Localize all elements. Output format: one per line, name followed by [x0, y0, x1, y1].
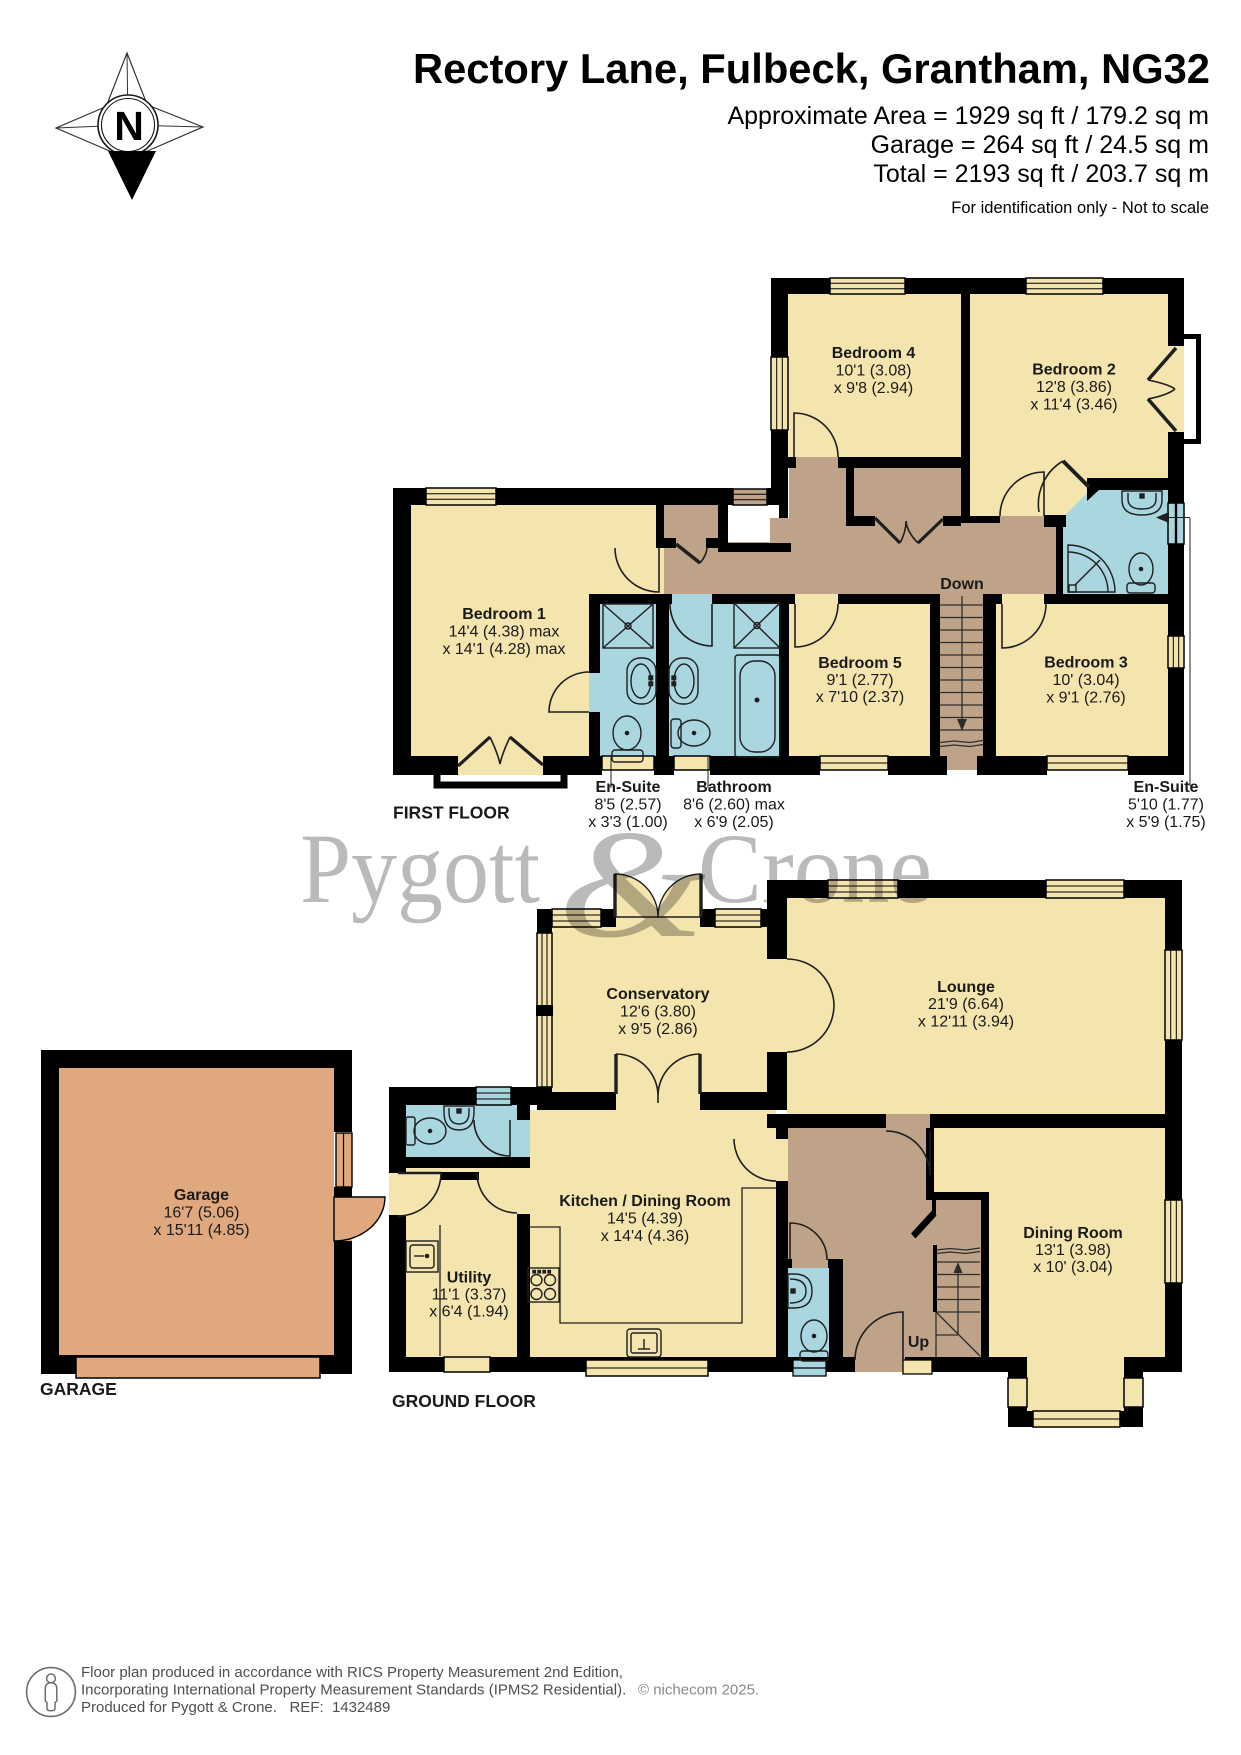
- svg-text:&: &: [558, 798, 706, 970]
- svg-text:10' (3.04): 10' (3.04): [1052, 672, 1119, 689]
- svg-text:x 14'1 (4.28) max: x 14'1 (4.28) max: [442, 641, 565, 658]
- svg-text:11'1 (3.37): 11'1 (3.37): [432, 1287, 507, 1304]
- svg-text:© nichecom 2025.: © nichecom 2025.: [638, 1682, 759, 1699]
- svg-text:9'1 (2.77): 9'1 (2.77): [826, 672, 893, 689]
- svg-text:Pygott: Pygott: [300, 813, 540, 924]
- svg-text:Bedroom 1: Bedroom 1: [462, 606, 546, 623]
- svg-text:x 10' (3.04): x 10' (3.04): [1033, 1259, 1113, 1276]
- svg-text:x 6'4 (1.94): x 6'4 (1.94): [429, 1304, 509, 1321]
- svg-text:Crone: Crone: [698, 813, 932, 924]
- svg-text:Up: Up: [908, 1334, 930, 1351]
- svg-text:x 12'11 (3.94): x 12'11 (3.94): [918, 1014, 1014, 1031]
- svg-text:12'6 (3.80): 12'6 (3.80): [620, 1004, 696, 1021]
- svg-text:Dining Room: Dining Room: [1023, 1225, 1123, 1242]
- svg-text:Garage = 264 sq ft / 24.5 sq m: Garage = 264 sq ft / 24.5 sq m: [871, 131, 1209, 159]
- svg-text:Incorporating International Pr: Incorporating International Property Mea…: [81, 1682, 626, 1699]
- svg-text:21'9 (6.64): 21'9 (6.64): [928, 996, 1004, 1013]
- svg-text:Produced for Pygott & Crone.: Produced for Pygott & Crone. REF: 143248…: [81, 1699, 390, 1716]
- svg-text:GROUND FLOOR: GROUND FLOOR: [392, 1391, 536, 1411]
- svg-text:14'4 (4.38) max: 14'4 (4.38) max: [449, 624, 560, 641]
- svg-text:Kitchen / Dining Room: Kitchen / Dining Room: [559, 1193, 731, 1210]
- svg-text:5'10 (1.77): 5'10 (1.77): [1128, 797, 1204, 814]
- svg-text:Approximate Area = 1929 sq ft: Approximate Area = 1929 sq ft / 179.2 sq…: [727, 102, 1209, 130]
- svg-text:x 11'4 (3.46): x 11'4 (3.46): [1030, 397, 1117, 414]
- svg-text:Bedroom 4: Bedroom 4: [832, 345, 916, 362]
- svg-text:Total = 2193 sq ft / 203.7 sq: Total = 2193 sq ft / 203.7 sq m: [873, 160, 1209, 188]
- svg-text:En-Suite: En-Suite: [596, 779, 661, 796]
- svg-text:13'1 (3.98): 13'1 (3.98): [1035, 1242, 1111, 1259]
- svg-text:GARAGE: GARAGE: [40, 1379, 117, 1399]
- svg-text:Garage: Garage: [174, 1187, 229, 1204]
- svg-text:Down: Down: [940, 576, 984, 593]
- svg-text:Utility: Utility: [447, 1270, 492, 1287]
- svg-text:Rectory Lane, Fulbeck, Grantha: Rectory Lane, Fulbeck, Grantham, NG32: [413, 45, 1210, 92]
- svg-text:En-Suite: En-Suite: [1134, 779, 1199, 796]
- svg-text:10'1 (3.08): 10'1 (3.08): [836, 363, 912, 380]
- svg-text:x 14'4 (4.36): x 14'4 (4.36): [601, 1228, 689, 1245]
- svg-text:Lounge: Lounge: [937, 979, 995, 996]
- svg-text:Bathroom: Bathroom: [696, 779, 772, 796]
- svg-text:x 9'1 (2.76): x 9'1 (2.76): [1046, 690, 1126, 707]
- svg-text:x 5'9 (1.75): x 5'9 (1.75): [1126, 814, 1206, 831]
- svg-text:Bedroom 5: Bedroom 5: [818, 655, 902, 672]
- svg-text:x 9'5 (2.86): x 9'5 (2.86): [618, 1021, 698, 1038]
- svg-text:x 7'10 (2.37): x 7'10 (2.37): [816, 689, 904, 706]
- svg-text:Conservatory: Conservatory: [606, 986, 709, 1003]
- svg-text:12'8 (3.86): 12'8 (3.86): [1036, 379, 1112, 396]
- svg-text:N: N: [114, 103, 144, 149]
- svg-text:14'5 (4.39): 14'5 (4.39): [607, 1211, 683, 1228]
- svg-text:x 9'8 (2.94): x 9'8 (2.94): [834, 380, 914, 397]
- svg-text:x 15'11 (4.85): x 15'11 (4.85): [153, 1222, 249, 1239]
- svg-text:For identification only - Not: For identification only - Not to scale: [951, 199, 1209, 217]
- svg-text:Bedroom 3: Bedroom 3: [1044, 655, 1128, 672]
- svg-text:Bedroom 2: Bedroom 2: [1032, 362, 1116, 379]
- svg-text:16'7 (5.06): 16'7 (5.06): [164, 1205, 240, 1222]
- svg-text:Floor plan produced in accorda: Floor plan produced in accordance with R…: [81, 1664, 623, 1681]
